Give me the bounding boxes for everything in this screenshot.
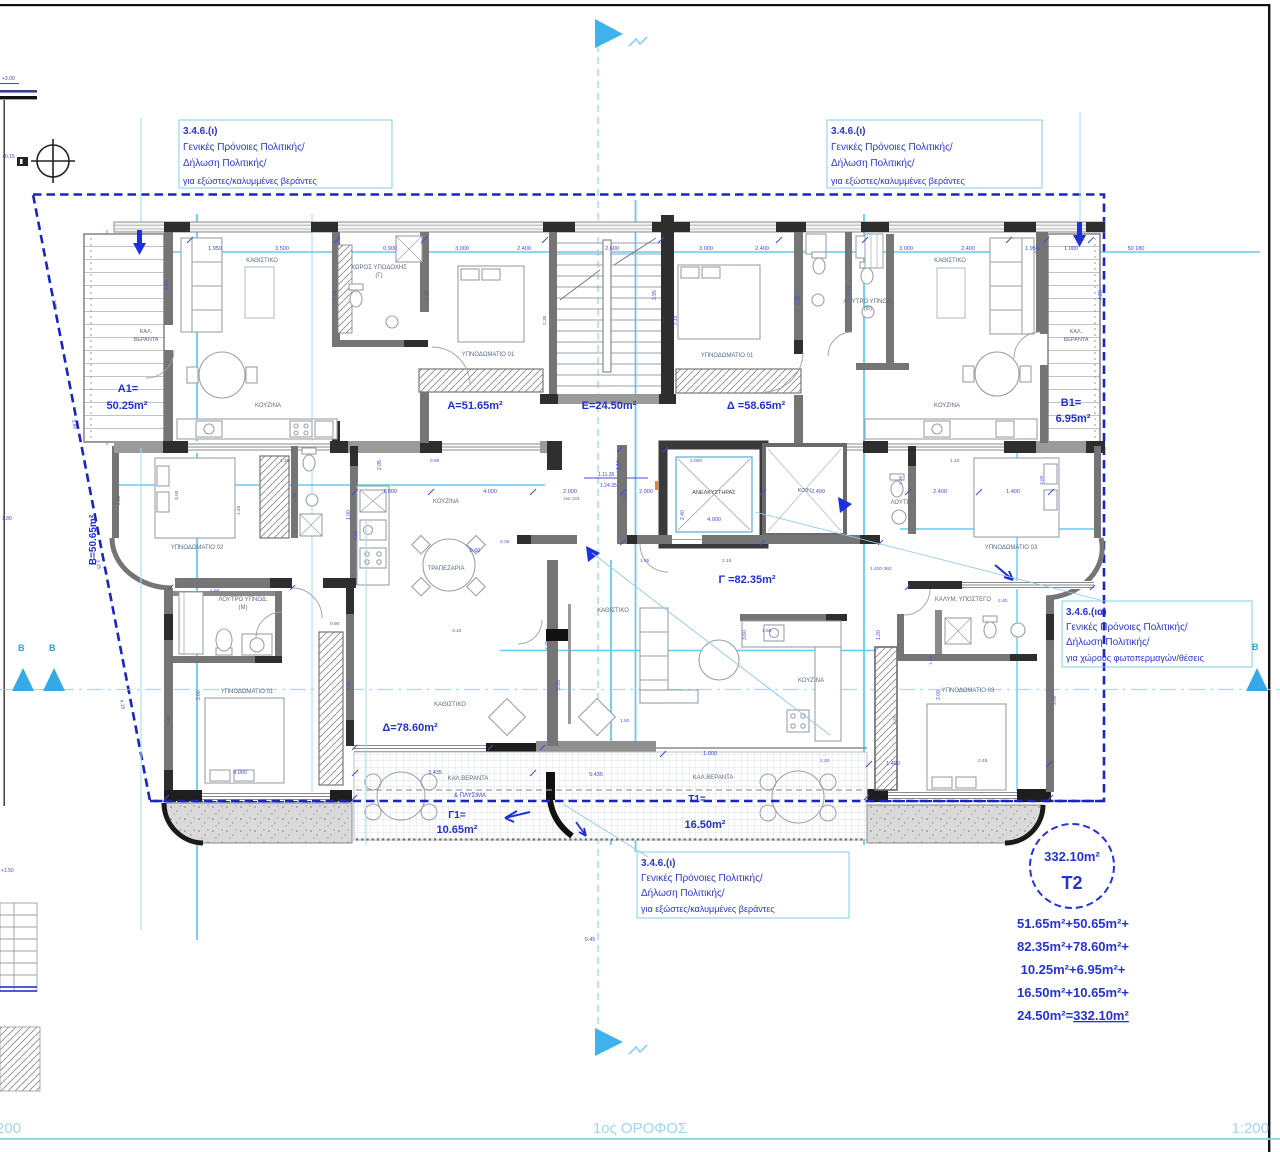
- svg-text:A1=: A1=: [118, 383, 139, 395]
- svg-text:1.80: 1.80: [762, 628, 772, 634]
- svg-text:2.05: 2.05: [377, 460, 383, 470]
- svg-text:4.000: 4.000: [707, 517, 721, 523]
- svg-text:ΚΟΥΖΙΝΑ: ΚΟΥΖΙΝΑ: [798, 678, 824, 684]
- svg-text:1.950: 1.950: [208, 246, 222, 252]
- svg-text:Γενικές Πρόνοιες Πολιτικής/: Γενικές Πρόνοιες Πολιτικής/: [831, 141, 953, 153]
- svg-text:ΧΩΡΟΣ ΥΠΟΔΟΧΗΣ: ΧΩΡΟΣ ΥΠΟΔΟΧΗΣ: [351, 265, 407, 271]
- svg-text:2.95: 2.95: [793, 295, 799, 305]
- svg-text:ΛΟΥΤΡΟ: ΛΟΥΤΡΟ: [891, 500, 916, 506]
- svg-text:Δήλωση Πολιτικής/: Δήλωση Πολιτικής/: [183, 157, 267, 169]
- svg-text:ΚΟΥΖΙΝΑ: ΚΟΥΖΙΝΑ: [433, 499, 459, 505]
- svg-text:2.40: 2.40: [680, 510, 686, 520]
- svg-text:2.400: 2.400: [933, 489, 947, 495]
- svg-text:Ε=24.50m²: Ε=24.50m²: [582, 400, 637, 412]
- svg-text:για εξώστες/καλυμμένες βεράντε: για εξώστες/καλυμμένες βεράντες: [183, 176, 317, 186]
- svg-text:0.900: 0.900: [383, 246, 397, 252]
- svg-text:1.000: 1.000: [383, 489, 397, 495]
- svg-text:B: B: [18, 643, 25, 653]
- svg-text:ΥΠΝΟΔΩΜΑΤΙΟ 01: ΥΠΝΟΔΩΜΑΤΙΟ 01: [221, 689, 274, 695]
- svg-text:ΚΑΘΙΣΤΙΚΟ: ΚΑΘΙΣΤΙΚΟ: [434, 702, 466, 708]
- svg-text:3.95: 3.95: [353, 530, 359, 540]
- svg-text:για εξώστες/καλυμμένες βεράντε: για εξώστες/καλυμμένες βεράντες: [641, 904, 775, 914]
- svg-text:3.000: 3.000: [699, 246, 713, 252]
- svg-text:1.20: 1.20: [892, 715, 898, 725]
- svg-text:16.50m²: 16.50m²: [685, 819, 726, 831]
- svg-text:Γενικές Πρόνοιες Πολιτικής/: Γενικές Πρόνοιες Πολιτικής/: [641, 872, 763, 884]
- svg-text:3.10: 3.10: [452, 628, 462, 634]
- svg-text:ΚΑΛ.ΒΕΡΑΝΤΑ: ΚΑΛ.ΒΕΡΑΝΤΑ: [448, 776, 489, 782]
- svg-text:3.35: 3.35: [556, 680, 562, 690]
- svg-text:24.50m²=332.10m²: 24.50m²=332.10m²: [1017, 1008, 1129, 1023]
- svg-text:+3.00: +3.00: [2, 76, 15, 82]
- svg-text:1.50: 1.50: [620, 718, 630, 724]
- svg-text:2.45: 2.45: [978, 758, 988, 764]
- svg-text:2.400: 2.400: [811, 489, 825, 495]
- svg-text:ΑΝΕΛΚΥΣΤΗΡΑΣ: ΑΝΕΛΚΥΣΤΗΡΑΣ: [692, 490, 736, 496]
- svg-text:Δ=78.60m²: Δ=78.60m²: [382, 722, 438, 734]
- svg-text:16.50m²+10.65m²+: 16.50m²+10.65m²+: [1017, 985, 1129, 1000]
- svg-text:για χώρους φωτοπερμαγών/θέσεις: για χώρους φωτοπερμαγών/θέσεις: [1066, 653, 1204, 663]
- svg-text:2.000: 2.000: [690, 458, 702, 464]
- svg-text:2.80: 2.80: [346, 680, 352, 690]
- svg-text:ΛΟΥΤΡΟ ΥΠΝΟΔ.: ΛΟΥΤΡΟ ΥΠΝΟΔ.: [218, 597, 267, 603]
- svg-text:6.95m²: 6.95m²: [1056, 413, 1091, 425]
- svg-text:Γενικές Πρόνοιες Πολιτικής/: Γενικές Πρόνοιες Πολιτικής/: [1066, 621, 1188, 633]
- svg-text:1.35: 1.35: [928, 655, 934, 665]
- svg-text:B: B: [1252, 642, 1259, 652]
- svg-text:3.95: 3.95: [652, 290, 658, 300]
- svg-text:A=51.65m²: A=51.65m²: [447, 400, 503, 412]
- svg-text:3.60: 3.60: [742, 630, 748, 640]
- svg-text:3.000: 3.000: [455, 246, 469, 252]
- svg-text:3.4.6.(ι): 3.4.6.(ι): [641, 858, 675, 869]
- svg-text:165 183: 165 183: [563, 496, 580, 501]
- svg-text:Τ1=: Τ1=: [688, 794, 706, 805]
- svg-text:1.10: 1.10: [950, 458, 960, 464]
- svg-text:ΚΑΘΙΣΤΙΚΟ: ΚΑΘΙΣΤΙΚΟ: [934, 258, 966, 264]
- svg-text:Β1=: Β1=: [1061, 397, 1082, 409]
- svg-text:3.45: 3.45: [166, 715, 172, 725]
- svg-text:3.4.6.(ια): 3.4.6.(ια): [1066, 607, 1107, 618]
- svg-text:3.35: 3.35: [544, 640, 550, 650]
- svg-text:2.20: 2.20: [820, 758, 830, 764]
- svg-text:0.60: 0.60: [470, 548, 481, 554]
- svg-text:2.000: 2.000: [563, 489, 577, 495]
- svg-text:2.60: 2.60: [332, 290, 338, 300]
- svg-text:ΥΠΝΟΔΩΜΑΤΙΟ 03: ΥΠΝΟΔΩΜΑΤΙΟ 03: [942, 688, 995, 694]
- svg-text:2.00: 2.00: [622, 492, 628, 502]
- svg-text:Δήλωση Πολιτικής/: Δήλωση Πολιτικής/: [831, 157, 915, 169]
- svg-text:4.20: 4.20: [1098, 290, 1104, 300]
- svg-text:10.25m²+6.95m²+: 10.25m²+6.95m²+: [1021, 962, 1126, 977]
- svg-text:+1.50: +1.50: [1, 868, 14, 874]
- svg-text:3.4.6.(ι): 3.4.6.(ι): [183, 126, 217, 137]
- svg-text:82.35m²+78.60m²+: 82.35m²+78.60m²+: [1017, 939, 1129, 954]
- svg-text:ΚΟΥΖΙΝΑ: ΚΟΥΖΙΝΑ: [934, 403, 960, 409]
- svg-text:2.05: 2.05: [292, 492, 298, 502]
- svg-text:1.45: 1.45: [236, 505, 242, 515]
- svg-text:4.20: 4.20: [164, 280, 170, 290]
- svg-text:3.000: 3.000: [899, 246, 913, 252]
- svg-text:1.000: 1.000: [1064, 246, 1078, 252]
- svg-text:ΛΟΥΤΡΟ ΥΠΝΟΔ.: ΛΟΥΤΡΟ ΥΠΝΟΔ.: [843, 299, 892, 305]
- svg-text:ΚΑΘΙΣΤΙΚΟ: ΚΑΘΙΣΤΙΚΟ: [597, 608, 629, 614]
- svg-text:Δήλωση Πολιτικής/: Δήλωση Πολιτικής/: [641, 887, 725, 899]
- svg-text:T2: T2: [1061, 873, 1082, 893]
- svg-text:3.00: 3.00: [936, 690, 942, 700]
- svg-text:2.35: 2.35: [542, 315, 548, 325]
- svg-text:50 180: 50 180: [1128, 246, 1145, 252]
- svg-text:1.400-360: 1.400-360: [870, 566, 892, 572]
- svg-text:ΚΟΥΖΙΝΑ: ΚΟΥΖΙΝΑ: [255, 403, 281, 409]
- svg-text:Γενικές Πρόνοιες Πολιτικής/: Γενικές Πρόνοιες Πολιτικής/: [183, 141, 305, 153]
- svg-text:ΚΑΛ.ΒΕΡΑΝΤΑ: ΚΑΛ.ΒΕΡΑΝΤΑ: [693, 775, 734, 781]
- svg-text:ΚΑΛ.: ΚΑΛ.: [1070, 329, 1083, 335]
- svg-text:3.435: 3.435: [428, 770, 442, 776]
- svg-text:Δήλωση Πολιτικής/: Δήλωση Πολιτικής/: [1066, 636, 1150, 648]
- svg-text:0.90: 0.90: [330, 621, 340, 627]
- svg-text:για εξώστες/καλυμμένες βεράντε: για εξώστες/καλυμμένες βεράντες: [831, 176, 965, 186]
- svg-text:ΥΠΝΟΔΩΜΑΤΙΟ 03: ΥΠΝΟΔΩΜΑΤΙΟ 03: [985, 545, 1038, 551]
- svg-text:2.600: 2.600: [605, 246, 619, 252]
- svg-text:2.60: 2.60: [210, 588, 220, 594]
- svg-text:Γ1=: Γ1=: [448, 810, 466, 821]
- svg-text:1.65: 1.65: [640, 558, 650, 564]
- svg-text:(Μ): (Μ): [239, 605, 248, 611]
- svg-text:ΚΑΘΙΣΤΙΚΟ: ΚΑΘΙΣΤΙΚΟ: [246, 258, 278, 264]
- svg-text:4.000: 4.000: [483, 489, 497, 495]
- svg-text:& ΠΛΥΣΙΜΑ: & ΠΛΥΣΙΜΑ: [454, 793, 486, 799]
- svg-text:10.65m²: 10.65m²: [437, 824, 478, 836]
- svg-text:2.400: 2.400: [517, 246, 531, 252]
- svg-text:1.10: 1.10: [616, 460, 622, 470]
- svg-text:1ος ΟΡΟΦΟΣ: 1ος ΟΡΟΦΟΣ: [593, 1120, 687, 1137]
- svg-text:(Β): (Β): [864, 306, 872, 312]
- svg-text:50.25m²: 50.25m²: [107, 400, 148, 412]
- svg-text:1.400: 1.400: [1006, 489, 1020, 495]
- svg-text:1.950: 1.950: [1025, 246, 1039, 252]
- svg-text:+0.15: +0.15: [2, 154, 15, 160]
- svg-text:3.00: 3.00: [1039, 475, 1045, 485]
- svg-text:2.400: 2.400: [961, 246, 975, 252]
- svg-text:ΚΑΛ.: ΚΑΛ.: [140, 329, 153, 335]
- svg-text:1.00: 1.00: [346, 510, 352, 520]
- svg-text:2.000: 2.000: [639, 489, 653, 495]
- svg-text:3.00: 3.00: [1052, 695, 1058, 705]
- svg-text:ΒΕΡΑΝΤΑ: ΒΕΡΑΝΤΑ: [1064, 337, 1089, 343]
- svg-text:ΚΑΛΥΜ. ΥΠΟΣΤΕΓΟ: ΚΑΛΥΜ. ΥΠΟΣΤΕΓΟ: [935, 597, 991, 603]
- svg-text:1.24.35: 1.24.35: [600, 483, 617, 489]
- svg-text:2.30: 2.30: [116, 495, 122, 505]
- svg-text:(Γ): (Γ): [375, 273, 382, 279]
- svg-text:1.11.35: 1.11.35: [598, 472, 615, 478]
- svg-text:ΥΠΝΟΔΩΜΑΤΙΟ 01: ΥΠΝΟΔΩΜΑΤΙΟ 01: [701, 353, 754, 359]
- svg-text:1.35: 1.35: [280, 458, 290, 464]
- svg-text:0.45: 0.45: [585, 937, 596, 943]
- svg-text:3.00: 3.00: [174, 490, 180, 500]
- svg-text:2.40: 2.40: [673, 315, 679, 325]
- svg-text:2.45: 2.45: [846, 285, 852, 295]
- svg-text:200: 200: [0, 1120, 21, 1137]
- svg-text:2.40: 2.40: [998, 598, 1008, 604]
- svg-text:2.30: 2.30: [424, 290, 430, 300]
- svg-text:1:200: 1:200: [1231, 1120, 1269, 1137]
- svg-text:ΤΡΑΠΕΖΑΡΙΑ: ΤΡΑΠΕΖΑΡΙΑ: [428, 566, 465, 572]
- svg-text:1.30: 1.30: [898, 475, 904, 485]
- svg-text:1.400: 1.400: [886, 761, 900, 767]
- svg-text:ΥΠΝΟΔΩΜΑΤΙΟ 01: ΥΠΝΟΔΩΜΑΤΙΟ 01: [462, 352, 515, 358]
- svg-text:332.10m²: 332.10m²: [1044, 849, 1100, 864]
- svg-text:ΒΕΡΑΝΤΑ: ΒΕΡΑΝΤΑ: [134, 337, 159, 343]
- svg-text:2.400: 2.400: [755, 246, 769, 252]
- svg-text:Γ =82.35m²: Γ =82.35m²: [718, 574, 775, 586]
- svg-text:1.20: 1.20: [876, 630, 882, 640]
- svg-text:3.00: 3.00: [196, 690, 202, 700]
- svg-text:2.15: 2.15: [722, 558, 732, 564]
- svg-text:3.500: 3.500: [275, 246, 289, 252]
- svg-text:1.000: 1.000: [703, 751, 717, 757]
- svg-text:1.80: 1.80: [2, 516, 12, 522]
- svg-text:51.65m²+50.65m²+: 51.65m²+50.65m²+: [1017, 916, 1129, 931]
- svg-text:Β=50.65m²: Β=50.65m²: [88, 514, 99, 565]
- svg-text:4.000: 4.000: [233, 770, 247, 776]
- svg-text:B: B: [49, 643, 56, 653]
- svg-text:2.35: 2.35: [500, 539, 510, 545]
- svg-text:ΥΠΝΟΔΩΜΑΤΙΟ 02: ΥΠΝΟΔΩΜΑΤΙΟ 02: [171, 545, 224, 551]
- svg-text:Δ =58.65m²: Δ =58.65m²: [727, 400, 786, 412]
- svg-text:0.90: 0.90: [430, 458, 440, 464]
- svg-text:5.435: 5.435: [589, 772, 603, 778]
- svg-text:3.4.6.(ι): 3.4.6.(ι): [831, 126, 865, 137]
